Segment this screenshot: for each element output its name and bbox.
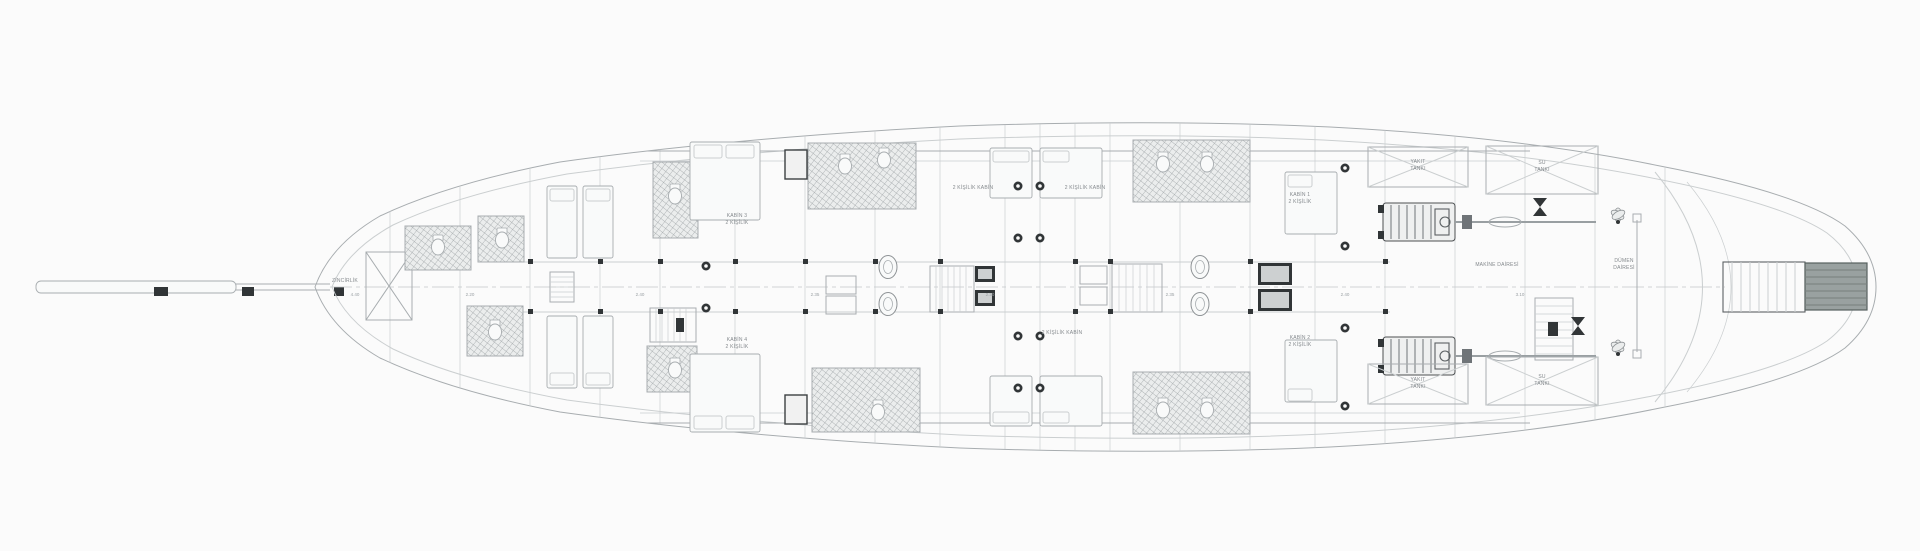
dimension-text: 2.35 — [1166, 292, 1175, 297]
stair-fore — [550, 272, 574, 302]
engine-room — [1378, 198, 1626, 375]
stair-engine-room — [1535, 298, 1573, 360]
dimension-text: 2.20 — [466, 292, 475, 297]
bed — [583, 186, 613, 258]
tank-label: YAKIT — [1410, 377, 1425, 383]
engine-port — [1378, 203, 1455, 241]
tank-label: TANKI — [1410, 384, 1425, 390]
tank-label: SU — [1538, 160, 1546, 166]
bed — [990, 376, 1032, 426]
tank-label: TANKI — [1410, 166, 1425, 172]
tank-label: SU — [1538, 374, 1546, 380]
stair-aft — [1112, 264, 1162, 312]
dimension-text: 4.40 — [351, 292, 360, 297]
cabin-label: 2 KİŞİLİK — [1289, 341, 1312, 348]
tank-label: TANKI — [1534, 167, 1549, 173]
bed — [583, 316, 613, 388]
cabin-label: KABİN 2 — [1290, 334, 1311, 341]
bowsprit-pole — [36, 281, 236, 293]
shaft-stbd — [1455, 349, 1596, 363]
dimension-text: 2.30 — [986, 292, 995, 297]
cabin-label: 2 KİŞİLİK KABİN — [1042, 329, 1083, 336]
deck-plan-sheet: ZİNCİRLİK KABİN 3 2 KİŞİLİK 2 KİŞİLİK KA… — [0, 0, 1920, 551]
bathroom-mid-stbd-large — [812, 368, 920, 432]
bathroom-aft-stbd — [1133, 372, 1250, 434]
shower-box — [785, 150, 807, 179]
dimension-texts: 4.40 2.20 2.40 2.35 2.30 2.35 2.40 3.10 — [351, 292, 1525, 297]
bed — [1040, 376, 1102, 426]
engine-room-label: MAKİNE DAİRESİ — [1475, 261, 1518, 268]
stair-mid — [930, 266, 974, 312]
swim-platform — [1805, 263, 1867, 310]
bed — [690, 142, 760, 220]
valve-symbol — [1533, 198, 1547, 216]
cabin-label: KABİN 4 — [727, 336, 748, 343]
bed — [990, 148, 1032, 198]
bathroom-mid-port-large — [808, 143, 916, 209]
dimension-text: 2.35 — [811, 292, 820, 297]
propeller-port — [1610, 208, 1627, 224]
bed — [690, 354, 760, 432]
tank-label: YAKIT — [1410, 159, 1425, 165]
bed — [547, 186, 577, 258]
shower-box — [785, 395, 807, 424]
shaft-port — [1455, 215, 1596, 229]
cabin-label: 2 KİŞİLİK KABİN — [953, 184, 994, 191]
cabin-label: 2 KİŞİLİK KABİN — [1065, 184, 1106, 191]
bowsprit-clamp — [154, 287, 168, 296]
steering-label: DAİRESİ — [1613, 264, 1634, 271]
bed — [547, 316, 577, 388]
cabin-label: KABİN 3 — [727, 212, 748, 219]
engine-stbd — [1378, 337, 1455, 375]
dimension-text: 2.40 — [636, 292, 645, 297]
bathroom-aft-port — [1133, 140, 1250, 202]
bowsprit — [36, 281, 344, 296]
cabin-label: 2 KİŞİLİK — [726, 219, 749, 226]
cabin-label: 2 KİŞİLİK — [726, 343, 749, 350]
dimension-text: 3.10 — [1516, 292, 1525, 297]
propeller-stbd — [1610, 340, 1627, 356]
cabin-label: KABİN 1 — [1290, 191, 1311, 198]
dimension-text: 2.40 — [1341, 292, 1350, 297]
stair-fore-companionway — [650, 308, 696, 342]
deck-plan-canvas: ZİNCİRLİK KABİN 3 2 KİŞİLİK 2 KİŞİLİK KA… — [0, 0, 1920, 551]
steering-label: DÜMEN — [1614, 257, 1634, 264]
tank-label: TANKI — [1534, 381, 1549, 387]
forepeak-label: ZİNCİRLİK — [332, 277, 358, 284]
bed — [1285, 340, 1337, 402]
bowsprit-clamp — [242, 287, 254, 296]
cabin-label: 2 KİŞİLİK — [1289, 198, 1312, 205]
stern-ladder — [1723, 262, 1805, 312]
